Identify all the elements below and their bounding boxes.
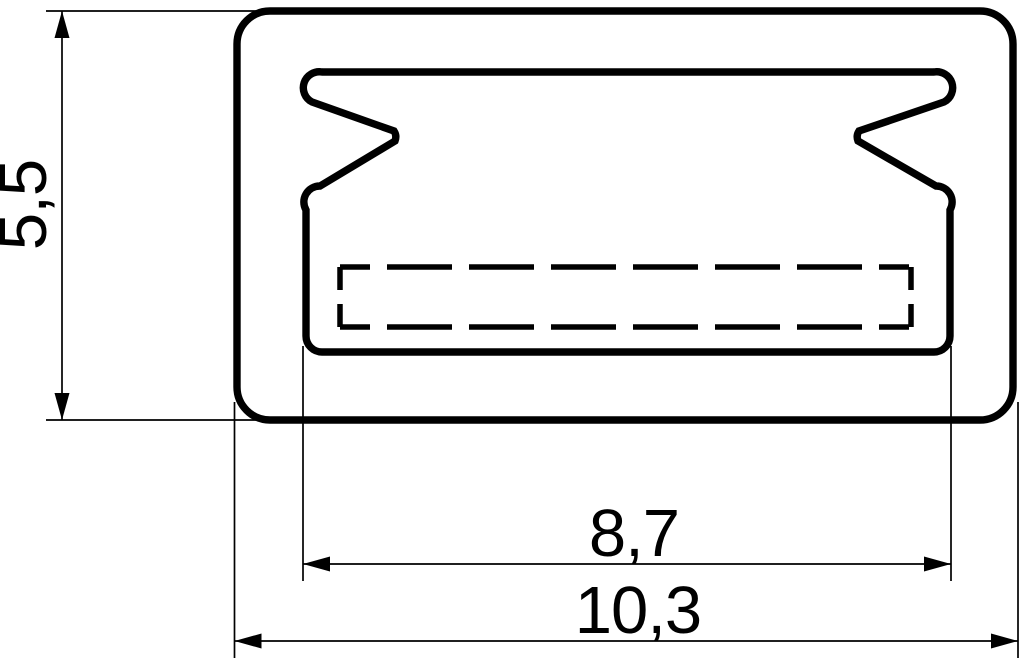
arrowhead-up xyxy=(55,11,70,38)
dimension-inner-width: 8,7 xyxy=(303,346,951,581)
arrowhead-right-outer xyxy=(991,634,1018,649)
dim-inner-width-label: 8,7 xyxy=(589,496,679,571)
arrowhead-left-inner xyxy=(303,557,330,572)
arrowhead-right-inner xyxy=(924,557,951,572)
arrowhead-left-outer xyxy=(235,634,262,649)
dim-outer-width-label: 10,3 xyxy=(575,573,701,648)
inner-channel-contour xyxy=(303,72,952,352)
dashed-insert-outline xyxy=(340,267,911,327)
arrowhead-down xyxy=(55,393,70,420)
dim-height-label: 5,5 xyxy=(0,160,61,250)
profile-cross-section: 5,5 8,7 10,3 xyxy=(0,0,1024,659)
technical-drawing-canvas: 5,5 8,7 10,3 xyxy=(0,0,1024,659)
profile-shapes xyxy=(237,11,1013,420)
